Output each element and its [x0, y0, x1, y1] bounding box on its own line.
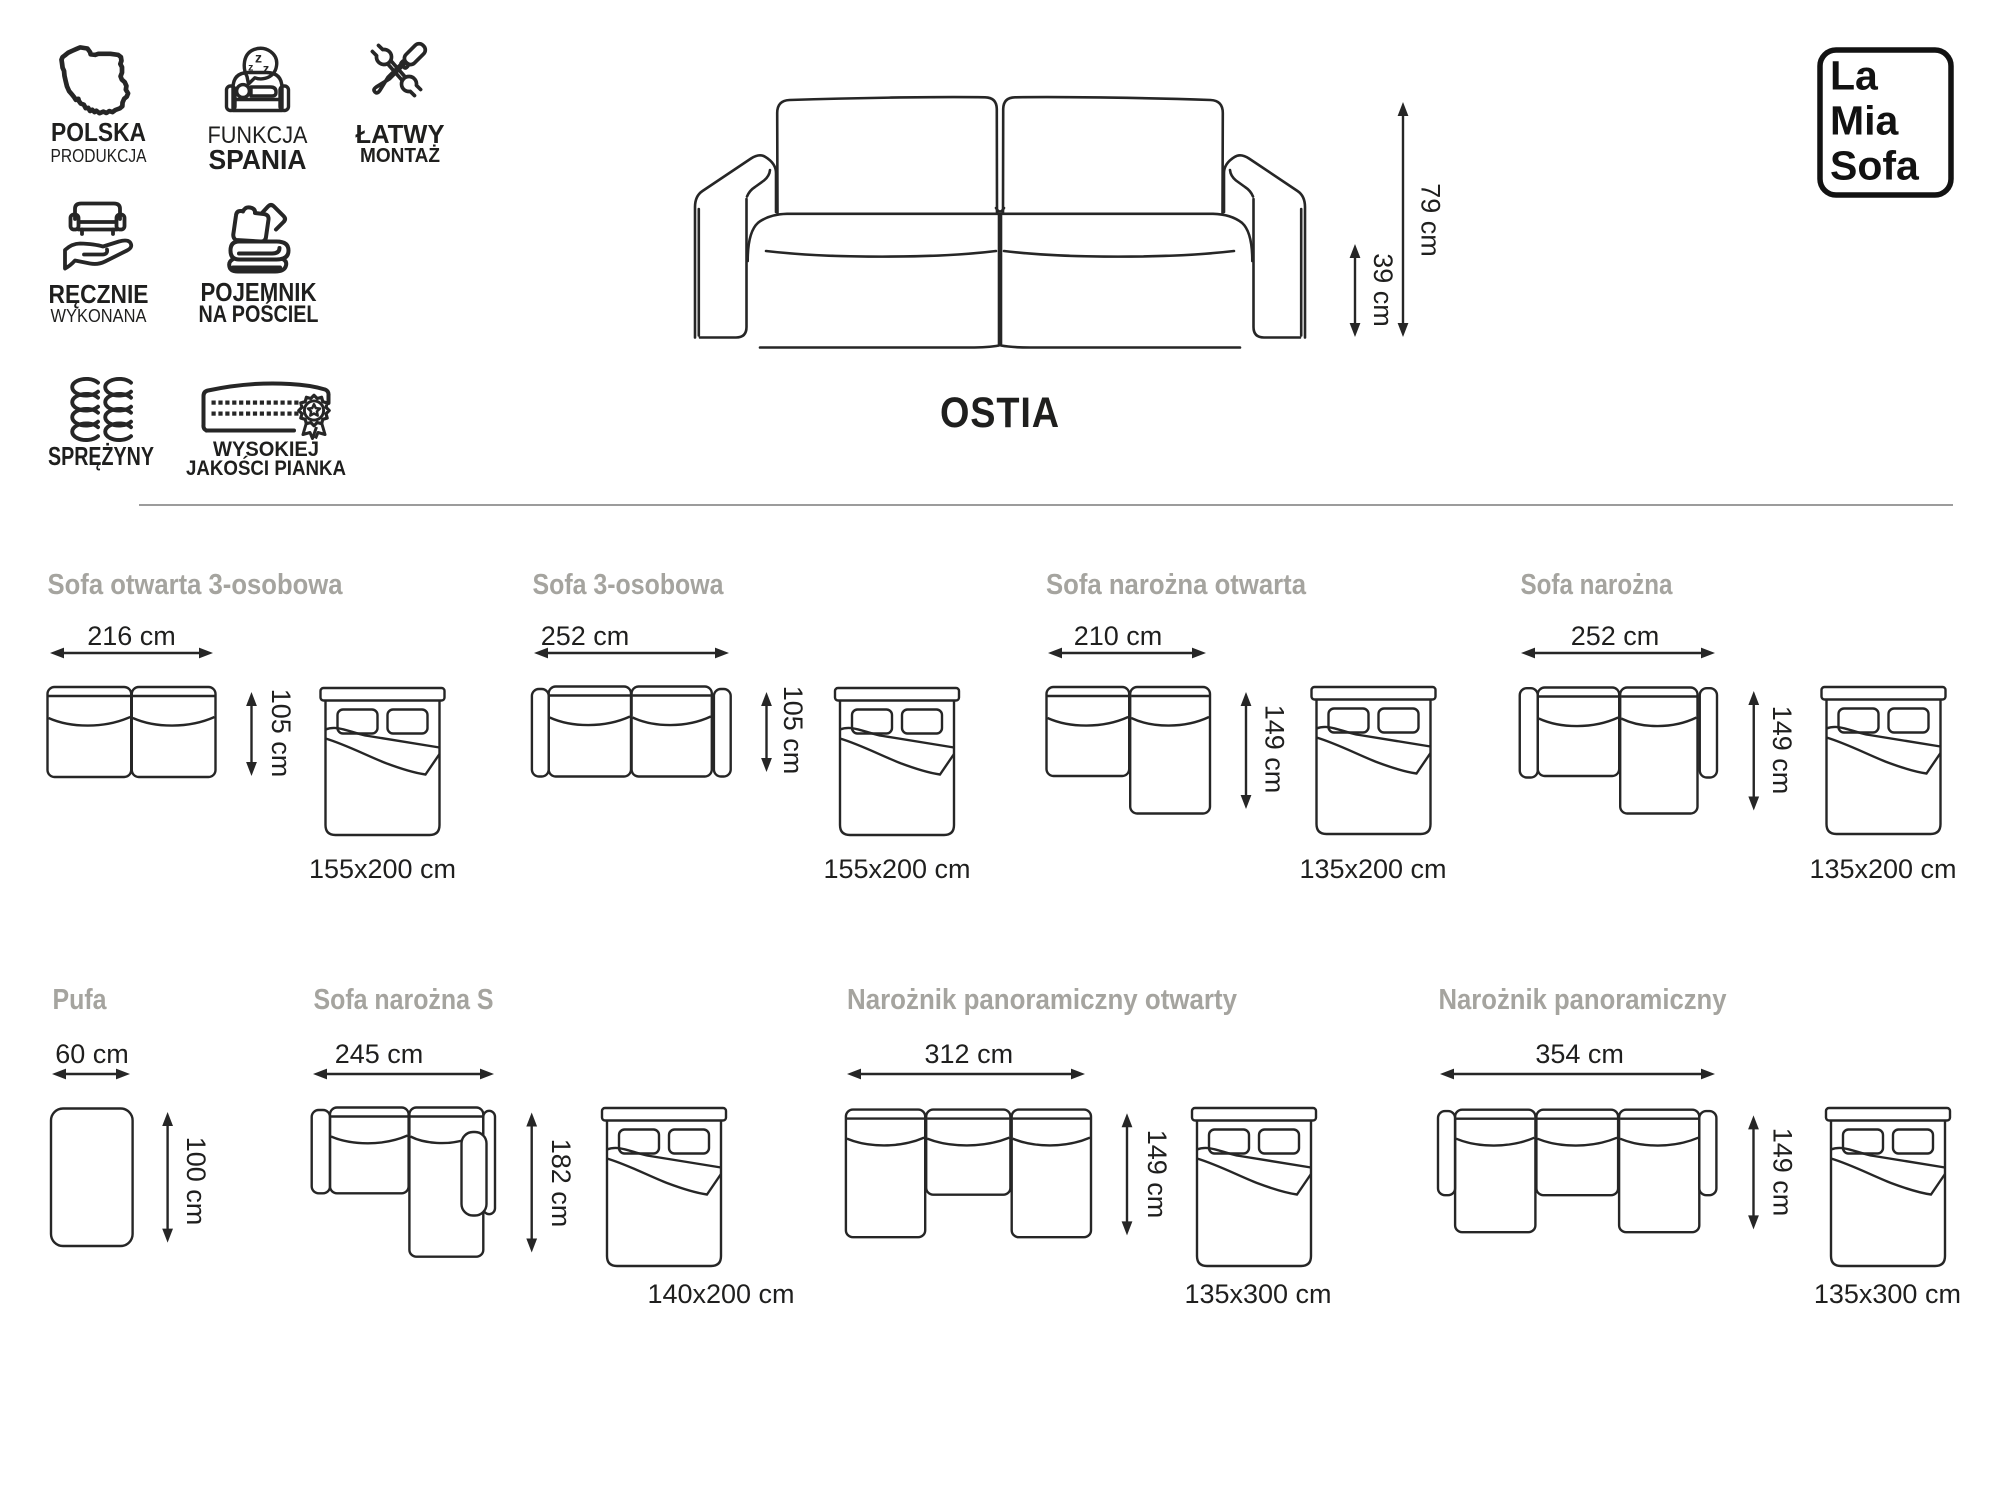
- svg-text:Narożnik panoramiczny: Narożnik panoramiczny: [1439, 984, 1727, 1016]
- svg-text:140x200 cm: 140x200 cm: [647, 1279, 794, 1309]
- svg-text:135x200 cm: 135x200 cm: [1299, 854, 1446, 884]
- svg-text:155x200 cm: 155x200 cm: [823, 854, 970, 884]
- svg-text:105 cm: 105 cm: [266, 689, 296, 778]
- svg-text:79 cm: 79 cm: [1416, 183, 1446, 257]
- svg-text:135x300 cm: 135x300 cm: [1184, 1279, 1331, 1309]
- svg-text:Sofa otwarta 3-osobowa: Sofa otwarta 3-osobowa: [48, 569, 344, 601]
- svg-text:39 cm: 39 cm: [1368, 253, 1398, 327]
- svg-text:Pufa: Pufa: [53, 984, 108, 1016]
- svg-text:Sofa: Sofa: [1830, 143, 1920, 189]
- svg-text:PRODUKCJA: PRODUKCJA: [51, 145, 148, 166]
- svg-text:MONTAŻ: MONTAŻ: [360, 144, 440, 167]
- svg-text:Sofa narożna: Sofa narożna: [1521, 569, 1674, 601]
- svg-text:155x200 cm: 155x200 cm: [309, 854, 456, 884]
- svg-text:z: z: [255, 50, 262, 66]
- svg-text:182 cm: 182 cm: [546, 1139, 576, 1228]
- svg-text:WYKONANA: WYKONANA: [51, 305, 148, 326]
- svg-text:149 cm: 149 cm: [1767, 706, 1797, 795]
- svg-text:312 cm: 312 cm: [925, 1039, 1014, 1069]
- svg-text:JAKOŚCI PIANKA: JAKOŚCI PIANKA: [186, 455, 346, 480]
- svg-text:135x200 cm: 135x200 cm: [1809, 854, 1956, 884]
- svg-text:SPANIA: SPANIA: [209, 144, 307, 175]
- svg-text:210 cm: 210 cm: [1074, 621, 1163, 651]
- svg-text:105 cm: 105 cm: [778, 686, 808, 775]
- svg-text:Sofa narożna otwarta: Sofa narożna otwarta: [1046, 569, 1307, 601]
- svg-text:Sofa narożna S: Sofa narożna S: [314, 984, 494, 1016]
- svg-text:z: z: [263, 61, 270, 76]
- svg-text:OSTIA: OSTIA: [940, 389, 1060, 437]
- svg-text:245 cm: 245 cm: [335, 1039, 424, 1069]
- svg-text:Narożnik panoramiczny otwarty: Narożnik panoramiczny otwarty: [847, 984, 1237, 1016]
- svg-text:252 cm: 252 cm: [1571, 621, 1660, 651]
- svg-text:354 cm: 354 cm: [1535, 1039, 1624, 1069]
- svg-text:149 cm: 149 cm: [1142, 1130, 1172, 1219]
- svg-text:z: z: [248, 62, 253, 74]
- svg-text:La: La: [1830, 53, 1879, 99]
- svg-text:POLSKA: POLSKA: [51, 117, 146, 147]
- svg-text:216 cm: 216 cm: [87, 621, 176, 651]
- svg-text:252 cm: 252 cm: [541, 621, 630, 651]
- svg-text:NA POŚCIEL: NA POŚCIEL: [199, 300, 319, 328]
- svg-text:SPRĘŻYNY: SPRĘŻYNY: [48, 441, 154, 471]
- svg-text:100 cm: 100 cm: [181, 1137, 211, 1226]
- svg-text:149 cm: 149 cm: [1260, 705, 1290, 794]
- svg-text:Mia: Mia: [1830, 98, 1900, 144]
- svg-text:135x300 cm: 135x300 cm: [1814, 1279, 1961, 1309]
- svg-text:60 cm: 60 cm: [55, 1039, 129, 1069]
- svg-text:Sofa 3-osobowa: Sofa 3-osobowa: [533, 569, 725, 601]
- svg-text:149 cm: 149 cm: [1768, 1128, 1798, 1217]
